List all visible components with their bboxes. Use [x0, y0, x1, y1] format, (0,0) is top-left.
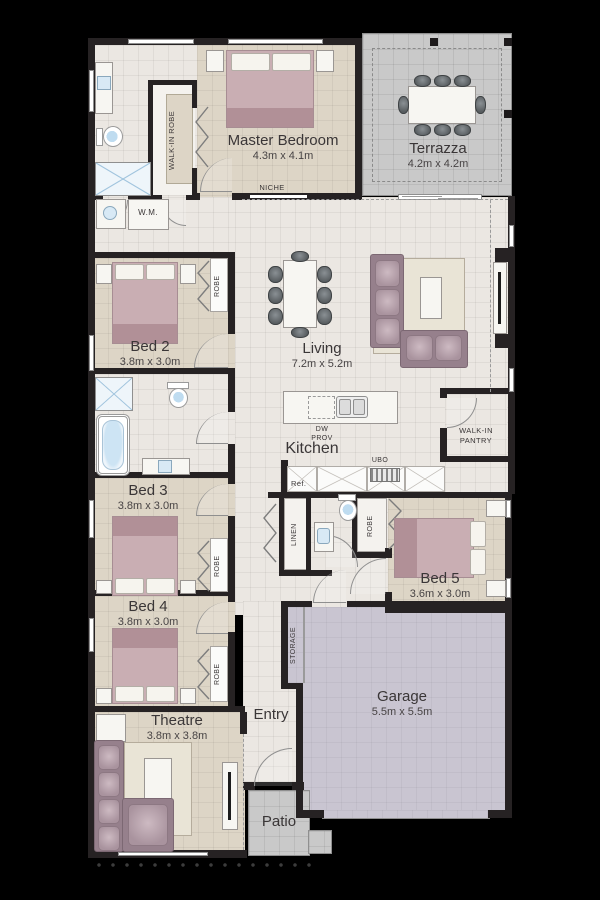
wall — [440, 456, 512, 462]
bench-cabinet — [405, 466, 445, 492]
window — [128, 39, 194, 44]
window — [89, 70, 94, 112]
bedside-table — [96, 580, 112, 594]
wall — [306, 498, 311, 570]
dishwasher-provision — [308, 396, 335, 419]
label-niche: NICHE — [259, 183, 284, 192]
label-robe-bed3: ROBE — [214, 546, 221, 586]
sink-bowl — [353, 399, 365, 415]
wall — [495, 248, 508, 262]
dining-chair — [291, 251, 309, 262]
outdoor-chair — [454, 124, 471, 136]
wall — [192, 80, 197, 108]
window — [228, 39, 323, 44]
wall — [228, 478, 235, 484]
label-linen: LINEN — [291, 512, 298, 558]
label-robe-bed5: ROBE — [367, 506, 374, 546]
label-robe-bed4: ROBE — [214, 654, 221, 694]
wall — [347, 601, 512, 607]
toilet-tank — [96, 128, 103, 146]
cabinet — [96, 714, 126, 742]
tv — [228, 772, 231, 820]
window — [89, 618, 94, 652]
wall — [148, 80, 197, 85]
window — [506, 578, 511, 598]
pillow — [146, 686, 175, 702]
wall — [440, 388, 512, 394]
window — [89, 500, 94, 538]
outdoor-chair — [454, 75, 471, 87]
cooktop — [370, 468, 400, 482]
window — [506, 500, 511, 518]
room-dims-theatre: 3.8m x 3.8m — [147, 730, 208, 742]
wall — [385, 607, 512, 613]
dining-chair — [317, 308, 332, 325]
outdoor-chair — [414, 124, 431, 136]
sofa-cushion — [435, 335, 462, 361]
bedside-table — [486, 580, 506, 597]
room-dims-master: 4.3m x 4.1m — [253, 150, 314, 162]
basin — [158, 460, 172, 473]
bifold-door — [262, 503, 278, 563]
wall — [228, 596, 235, 602]
pillow — [146, 578, 175, 594]
label-robe-bed2: ROBE — [214, 266, 221, 306]
dining-chair — [268, 287, 283, 304]
dining-table — [283, 260, 317, 328]
pillow — [115, 578, 144, 594]
bed-foot — [395, 519, 417, 577]
wall — [296, 689, 303, 818]
room-dims-terrazza: 4.2m x 4.2m — [408, 158, 469, 170]
wall — [228, 516, 235, 596]
basin — [97, 76, 111, 90]
room-dims-living: 7.2m x 5.2m — [292, 358, 353, 370]
dining-chair — [317, 266, 332, 283]
room-label-patio: Patio — [262, 813, 296, 830]
sofa-cushion — [128, 804, 168, 846]
tub-bowl — [103, 206, 117, 220]
room-label-bed3: Bed 3 — [128, 482, 167, 499]
bedside-table — [96, 688, 112, 704]
patio-step — [308, 830, 332, 854]
bed-foot — [227, 108, 313, 127]
sofa-cushion — [98, 826, 120, 851]
bedside-table — [486, 500, 506, 517]
outdoor-chair — [398, 96, 409, 114]
bedside-table — [180, 688, 196, 704]
sofa-cushion — [98, 799, 120, 824]
wall — [228, 632, 235, 712]
room-dims-bed5: 3.6m x 3.0m — [410, 588, 471, 600]
coffee-table — [420, 277, 442, 319]
garage-door-threshold — [322, 810, 490, 819]
room-label-entry: Entry — [253, 706, 288, 723]
label-pantry-line2: PANTRY — [460, 436, 492, 445]
terrazza-post — [504, 110, 512, 118]
room-dims-bed3: 3.8m x 3.0m — [118, 500, 179, 512]
outdoor-chair — [475, 96, 486, 114]
bedside-table — [316, 50, 334, 72]
wall — [505, 601, 512, 818]
dining-chair — [268, 308, 283, 325]
bedside-table — [180, 264, 196, 284]
toilet-bowl — [103, 126, 123, 147]
ceiling-break-line — [490, 200, 492, 392]
wall — [296, 810, 324, 818]
room-label-living: Living — [302, 340, 341, 357]
dining-chair — [317, 287, 332, 304]
sink-bowl — [339, 399, 351, 415]
dining-chair — [291, 327, 309, 338]
sofa-cushion — [98, 745, 120, 770]
window — [509, 225, 514, 247]
dining-chair — [268, 266, 283, 283]
porch-edge-dots — [92, 862, 312, 868]
sofa-cushion — [375, 318, 400, 345]
toilet-bowl — [169, 388, 188, 408]
wall — [279, 494, 284, 574]
shower — [95, 377, 133, 411]
toilet-bowl — [339, 500, 357, 521]
room-label-bed4: Bed 4 — [128, 598, 167, 615]
sofa-cushion — [375, 260, 400, 287]
room-label-terrazza: Terrazza — [409, 140, 467, 157]
wall — [88, 368, 235, 374]
label-dw-line1: DW — [316, 426, 328, 433]
storage-divider — [303, 607, 305, 683]
outdoor-table — [408, 86, 476, 124]
terrazza-post — [504, 38, 512, 46]
room-dims-garage: 5.5m x 5.5m — [372, 706, 433, 718]
coffee-table — [144, 758, 172, 802]
label-pantry-line1: WALK-IN — [459, 426, 493, 435]
bedside-table — [96, 264, 112, 284]
bedside-table — [206, 50, 224, 72]
theatre-open-line — [243, 734, 245, 850]
outdoor-chair — [434, 75, 451, 87]
pillow — [470, 549, 486, 575]
bedside-table — [180, 580, 196, 594]
pillow — [231, 53, 270, 71]
room-label-garage: Garage — [377, 688, 427, 705]
outdoor-chair — [434, 124, 451, 136]
room-label-kitchen: Kitchen — [285, 440, 338, 458]
tv — [498, 272, 501, 324]
pillow — [146, 264, 175, 280]
wall — [281, 601, 288, 689]
room-label-theatre: Theatre — [151, 712, 203, 729]
wall — [240, 712, 247, 734]
wall — [292, 782, 304, 790]
sofa-cushion — [98, 772, 120, 797]
bifold-door — [194, 106, 210, 168]
bed-foot — [113, 629, 177, 648]
room-label-bed5: Bed 5 — [420, 570, 459, 587]
label-walk-in-robe: WALK-IN ROBE — [167, 98, 176, 182]
ceiling-break-line — [242, 199, 508, 201]
wall — [88, 38, 95, 858]
powder-basin — [317, 528, 330, 544]
pillow — [470, 521, 486, 547]
wall — [279, 570, 332, 576]
terrazza-post — [430, 38, 438, 46]
pillow — [115, 264, 144, 280]
bed-foot — [113, 517, 177, 536]
bifold-door — [196, 540, 211, 592]
sofa-cushion — [406, 335, 433, 361]
bench-cabinet — [317, 466, 367, 492]
label-ubo: UBO — [372, 457, 388, 464]
room-label-master: Master Bedroom — [228, 132, 339, 149]
label-storage: STORAGE — [290, 618, 297, 674]
bathtub-basin — [102, 420, 124, 470]
pillow — [115, 686, 144, 702]
label-dw-line2: PROV — [311, 435, 332, 442]
niche-recess — [250, 195, 307, 198]
window — [118, 852, 208, 856]
wall — [440, 388, 447, 398]
window — [89, 335, 94, 371]
outdoor-chair — [414, 75, 431, 87]
wall — [228, 374, 235, 412]
window — [509, 368, 514, 392]
wall — [228, 252, 235, 334]
room-label-bed2: Bed 2 — [130, 338, 169, 355]
wall — [355, 38, 362, 200]
floor-plan: Master Bedroom 4.3m x 4.1m Terrazza 4.2m… — [0, 0, 600, 900]
label-ref: Ref. — [291, 479, 306, 488]
sliding-door-leaf — [402, 196, 442, 197]
room-dims-bed2: 3.8m x 3.0m — [120, 356, 181, 368]
bifold-door — [196, 648, 211, 700]
bifold-door — [196, 260, 211, 312]
sofa-cushion — [375, 289, 400, 316]
wall — [192, 168, 197, 198]
label-wm: W.M. — [138, 208, 158, 217]
pillow — [272, 53, 311, 71]
wall — [495, 334, 508, 348]
shower — [95, 162, 151, 196]
room-dims-bed4: 3.8m x 3.0m — [118, 616, 179, 628]
